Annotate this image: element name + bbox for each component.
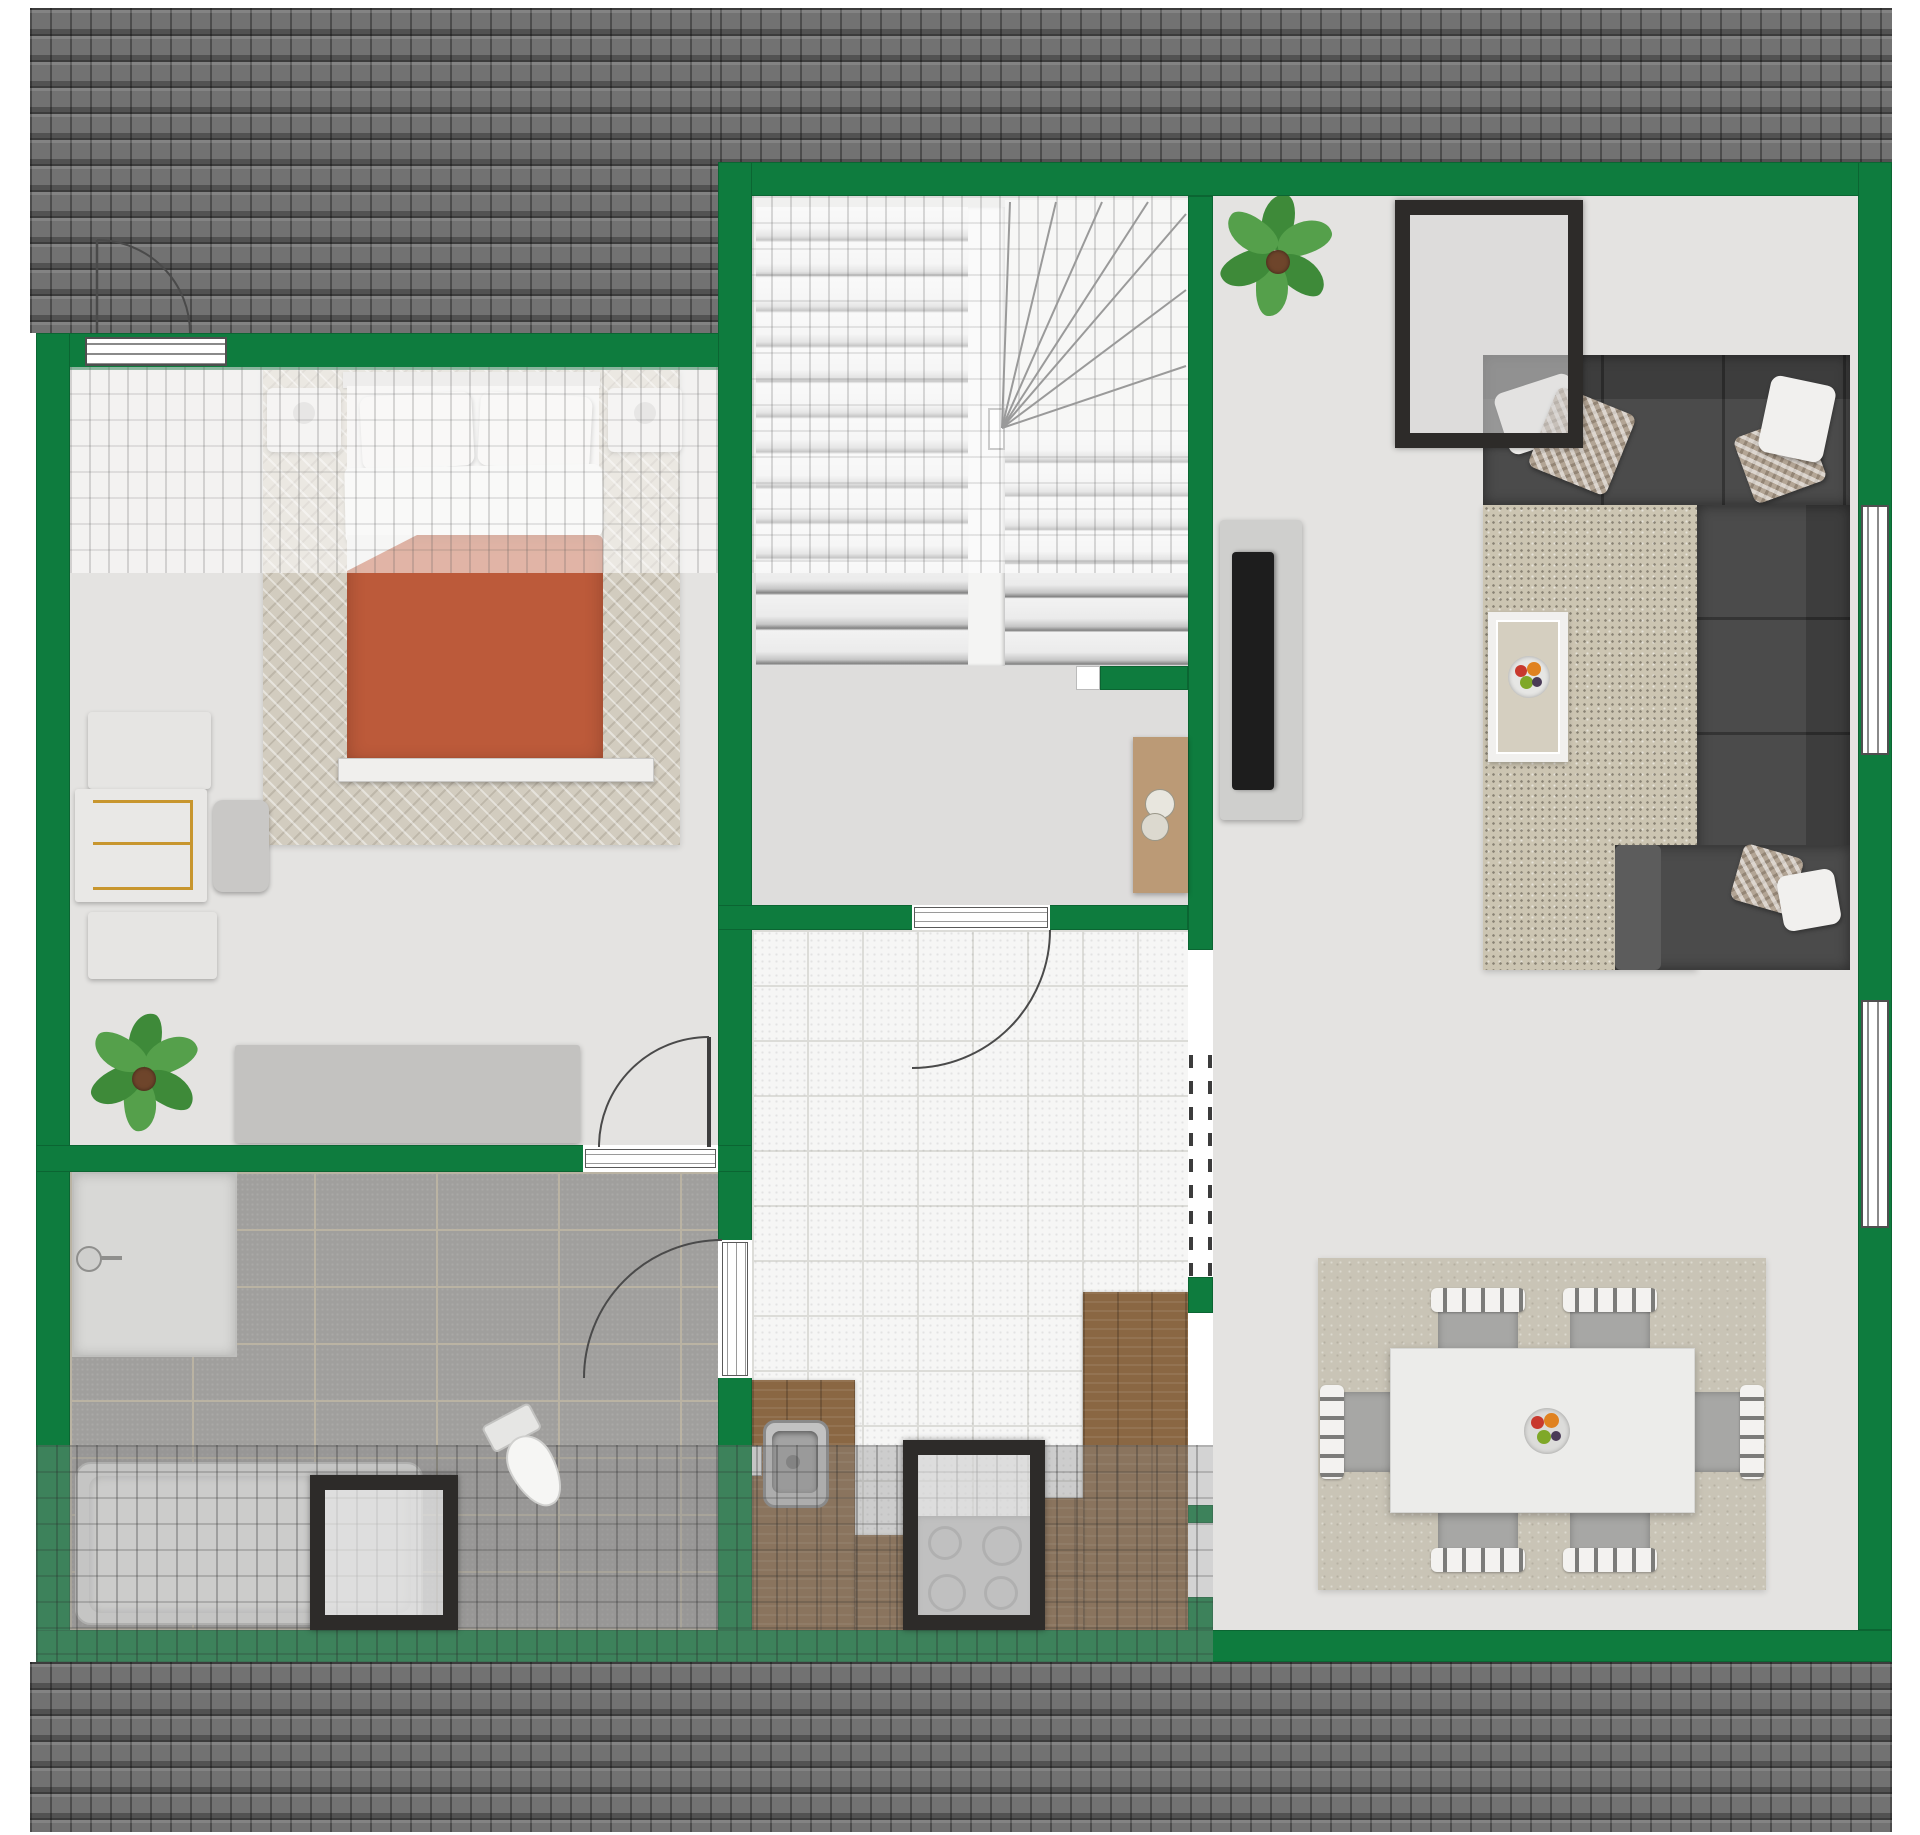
door-swing-and-stair-lines (0, 0, 1920, 1835)
floorplan-canvas (0, 0, 1920, 1835)
